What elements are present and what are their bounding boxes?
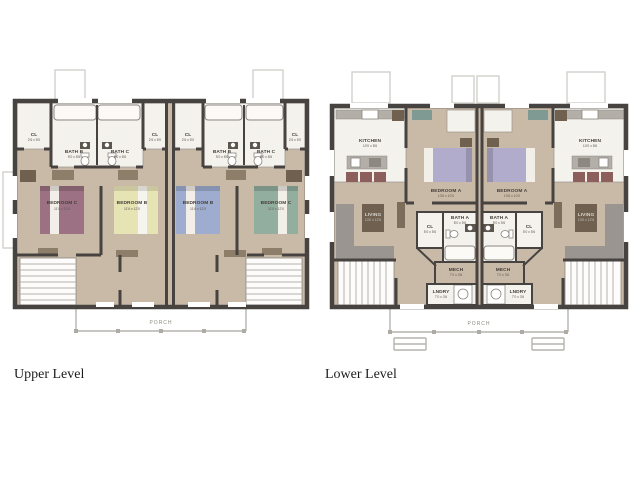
lower-porch-label: PORCH	[467, 321, 490, 327]
lower-floor-plan: PORCH	[329, 72, 629, 350]
desk	[286, 170, 302, 182]
bathtub-icon	[54, 105, 96, 120]
dim-cl: 5'0 x 5'6	[424, 230, 437, 234]
dim-bedroom-b: 11'6 x 12'0	[190, 207, 206, 211]
kitchen-sink-icon	[599, 158, 608, 167]
lower-stairs-left	[338, 260, 394, 305]
dresser	[528, 110, 548, 120]
porch-steps-right	[532, 338, 564, 350]
dim-bath-a: 8'0 x 5'6	[454, 221, 467, 225]
upper-level-title: Upper Level	[14, 367, 84, 383]
lower-stairs-right	[565, 260, 621, 305]
label-bedroom-b: BEDROOM B	[117, 200, 148, 206]
fridge-icon	[392, 110, 404, 121]
toilet-icon	[446, 230, 450, 238]
stool	[573, 172, 585, 182]
tv-console	[397, 202, 405, 228]
dim-bedroom-c: 11'0 x 12'0	[268, 207, 284, 211]
lower-level-title: Lower Level	[325, 367, 397, 383]
dim-mech: 7'0 x 3'6	[497, 273, 510, 277]
dim-kitchen: 10'0 x 8'6	[363, 144, 377, 148]
stool	[587, 172, 599, 182]
bathtub-icon	[484, 246, 514, 260]
dim-bath-a: 8'0 x 5'6	[493, 221, 506, 225]
washer-icon	[487, 285, 505, 304]
fridge-icon	[555, 110, 567, 121]
dim-bedroom-b: 11'6 x 12'0	[124, 207, 140, 211]
upper-stairs-right	[246, 258, 302, 305]
stove-icon	[362, 110, 378, 119]
dim-cl: 2'6 x 5'0	[28, 138, 41, 142]
washer-icon	[454, 285, 472, 304]
bathtub-icon	[246, 105, 283, 120]
dim-bath-b: 5'0 x 8'6	[216, 155, 229, 159]
floor-plan-page: PORCH	[0, 0, 640, 480]
sofa-sectional	[565, 246, 623, 260]
nightstand	[460, 138, 472, 147]
stool	[601, 172, 613, 182]
lower-porch: PORCH	[388, 307, 568, 350]
upper-floor-plan: PORCH	[3, 70, 310, 333]
dim-bedroom-c: 11'0 x 12'0	[54, 207, 70, 211]
dim-bath-c: 5'0 x 8'6	[260, 155, 273, 159]
floor-plans-canvas: PORCH	[0, 0, 640, 480]
dim-lndry: 7'0 x 3'6	[435, 295, 448, 299]
dim-cl: 2'6 x 5'0	[289, 138, 302, 142]
dim-cl: 5'0 x 5'6	[523, 230, 536, 234]
dim-bath-c: 5'0 x 8'6	[114, 155, 127, 159]
upper-porch-label: PORCH	[149, 320, 172, 326]
stool	[360, 172, 372, 182]
dim-mech: 7'0 x 3'6	[450, 273, 463, 277]
tv-console	[554, 202, 562, 228]
dresser	[412, 110, 432, 120]
dim-cl: 2'6 x 5'0	[182, 138, 195, 142]
stool	[374, 172, 386, 182]
cooktop-icon	[578, 158, 590, 167]
dim-lndry: 7'0 x 3'6	[512, 295, 525, 299]
dim-bath-b: 5'0 x 8'6	[68, 155, 81, 159]
dim-bedroom-a: 13'6 x 10'0	[438, 194, 454, 198]
cooktop-icon	[369, 158, 381, 167]
dim-cl: 2'6 x 5'0	[149, 138, 162, 142]
kitchen-sink-icon	[351, 158, 360, 167]
stove-icon	[582, 110, 598, 119]
desk	[20, 170, 36, 182]
dresser	[118, 170, 138, 180]
dim-living: 13'0 x 12'6	[578, 218, 594, 222]
stool	[346, 172, 358, 182]
upper-porch: PORCH	[74, 307, 246, 333]
bathtub-icon	[205, 105, 242, 120]
porch-steps-left	[394, 338, 426, 350]
dim-living: 13'0 x 12'6	[365, 218, 381, 222]
sofa-sectional	[336, 246, 394, 260]
dresser	[226, 170, 246, 180]
bench	[224, 250, 246, 257]
dim-bedroom-a: 13'6 x 10'0	[504, 194, 520, 198]
bathtub-icon	[98, 105, 140, 120]
dresser	[52, 170, 74, 180]
nightstand	[487, 138, 499, 147]
upper-stairs-left	[20, 258, 76, 305]
lower-roof-outlines	[352, 72, 605, 103]
bathtub-icon	[445, 246, 475, 260]
bench	[262, 248, 282, 255]
label-bedroom-c: BEDROOM C	[261, 200, 292, 206]
toilet-icon	[509, 230, 513, 238]
label-bedroom-b: BEDROOM B	[183, 200, 214, 206]
label-bedroom-c: BEDROOM C	[47, 200, 78, 206]
dim-kitchen: 10'0 x 8'6	[583, 144, 597, 148]
